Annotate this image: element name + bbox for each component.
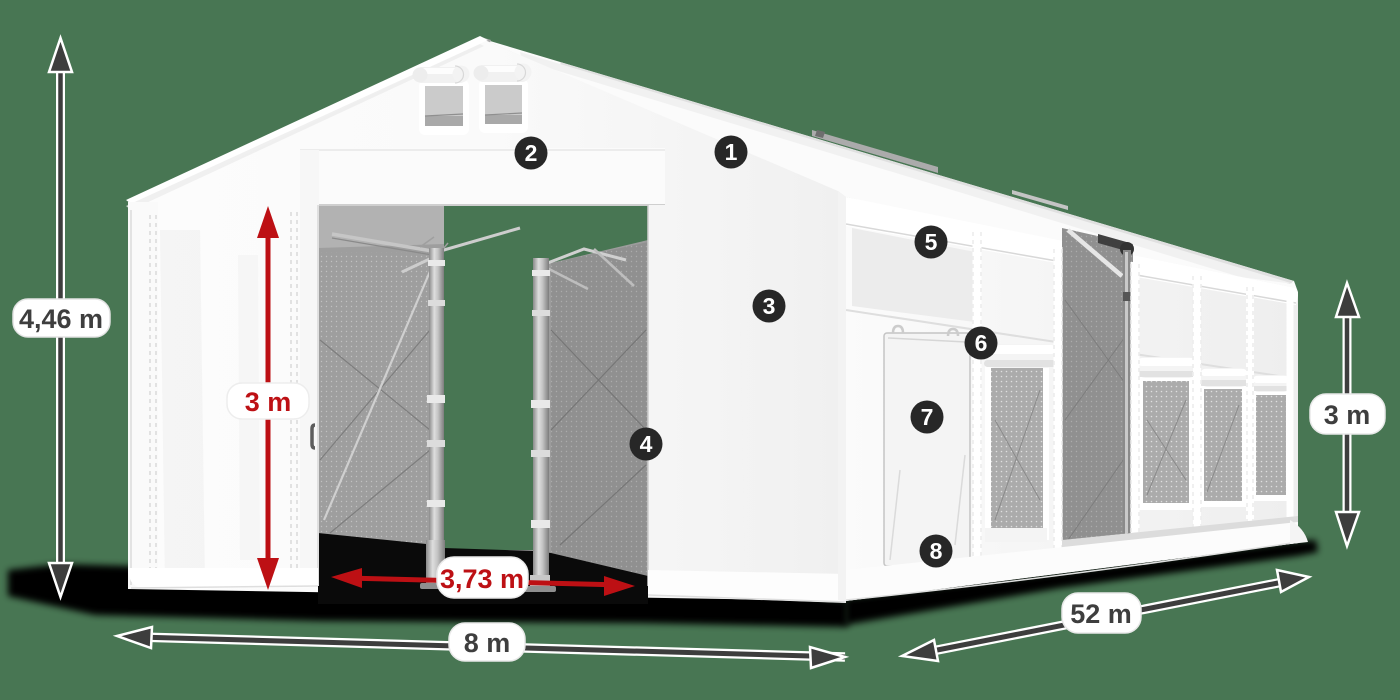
svg-text:7: 7 [921, 404, 934, 430]
svg-text:3,73 m: 3,73 m [440, 564, 524, 594]
svg-text:8: 8 [930, 538, 943, 564]
svg-text:8 m: 8 m [464, 628, 511, 658]
svg-text:3: 3 [763, 293, 776, 319]
svg-text:5: 5 [925, 229, 938, 255]
svg-text:4: 4 [640, 431, 653, 457]
svg-text:3 m: 3 m [245, 387, 292, 417]
svg-text:52 m: 52 m [1070, 599, 1132, 629]
svg-text:2: 2 [525, 140, 538, 166]
svg-text:3 m: 3 m [1324, 400, 1371, 430]
svg-text:1: 1 [725, 139, 738, 165]
svg-text:6: 6 [975, 330, 988, 356]
svg-text:4,46 m: 4,46 m [19, 304, 103, 334]
